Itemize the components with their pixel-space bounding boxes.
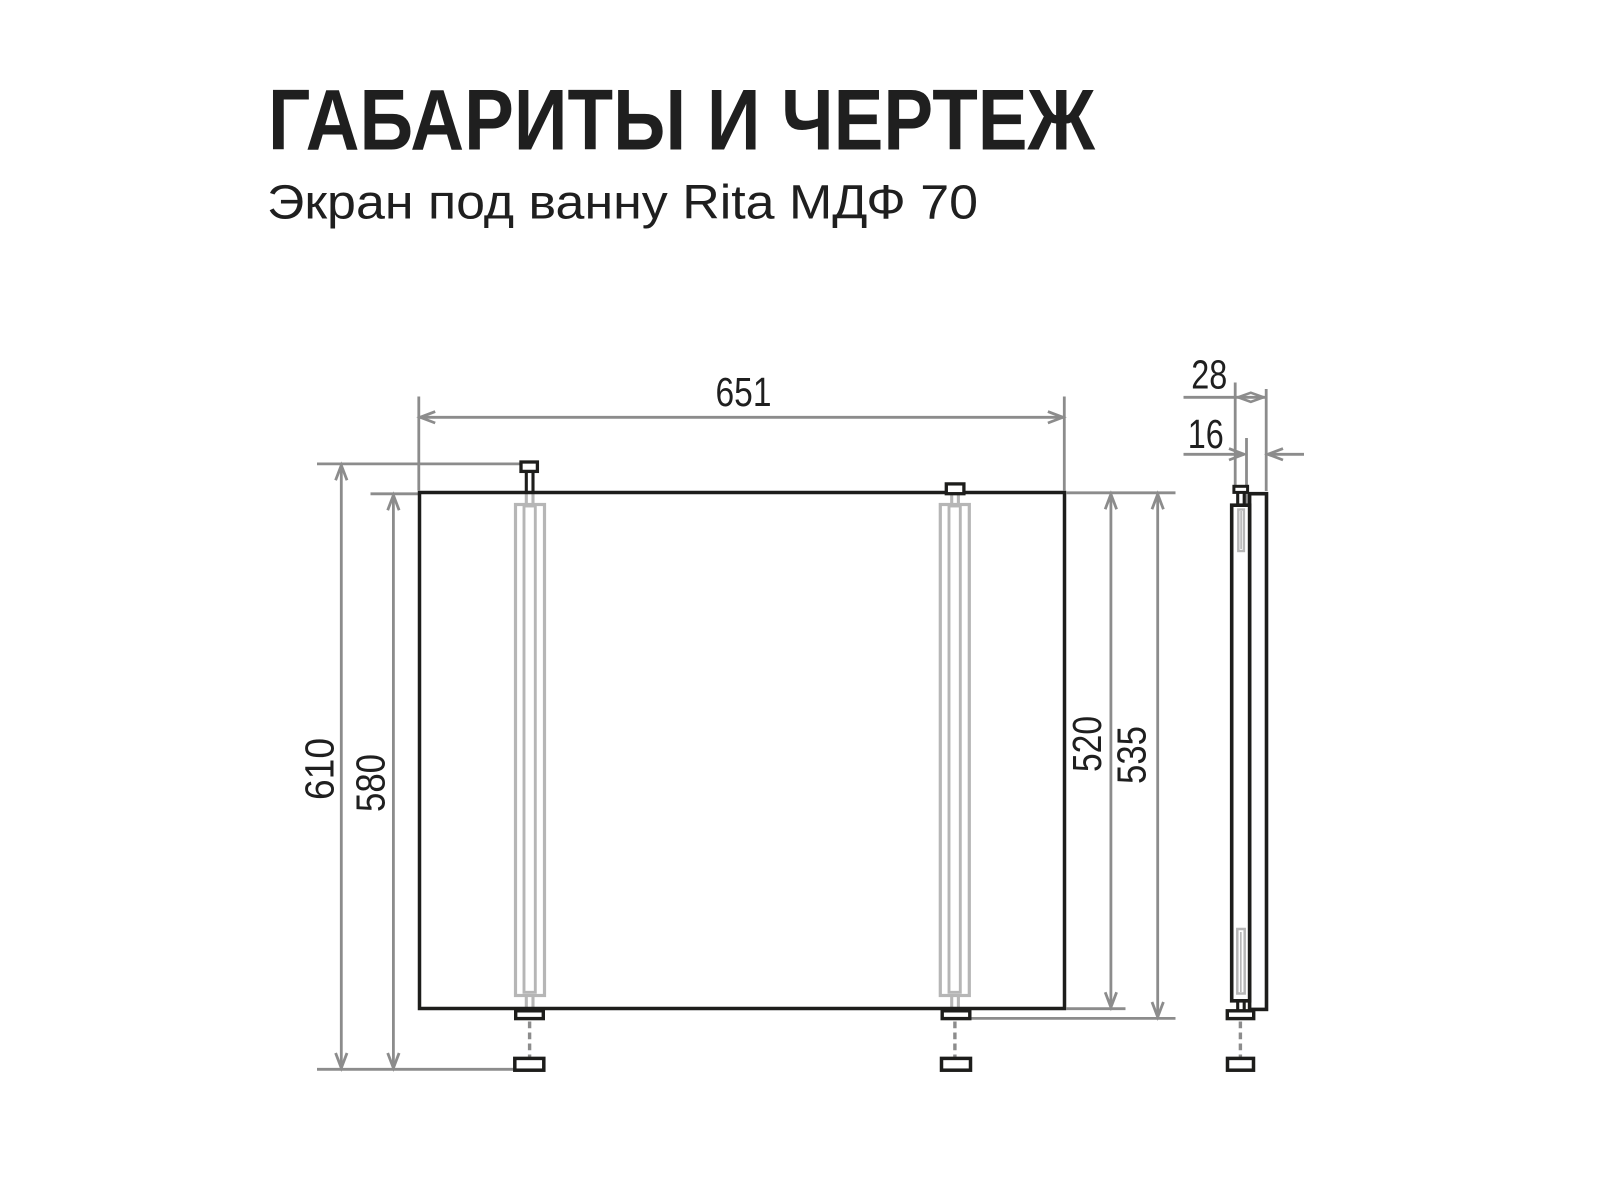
svg-text:651: 651 xyxy=(716,369,772,415)
svg-text:580: 580 xyxy=(348,754,394,812)
svg-text:535: 535 xyxy=(1109,726,1155,784)
svg-text:520: 520 xyxy=(1064,716,1110,772)
svg-text:Экран под ванну Rita МДФ 70: Экран под ванну Rita МДФ 70 xyxy=(267,177,978,230)
svg-text:610: 610 xyxy=(297,738,343,800)
svg-text:ГАБАРИТЫ И ЧЕРТЕЖ: ГАБАРИТЫ И ЧЕРТЕЖ xyxy=(268,73,1096,169)
svg-text:16: 16 xyxy=(1188,411,1224,457)
svg-text:28: 28 xyxy=(1191,351,1227,397)
